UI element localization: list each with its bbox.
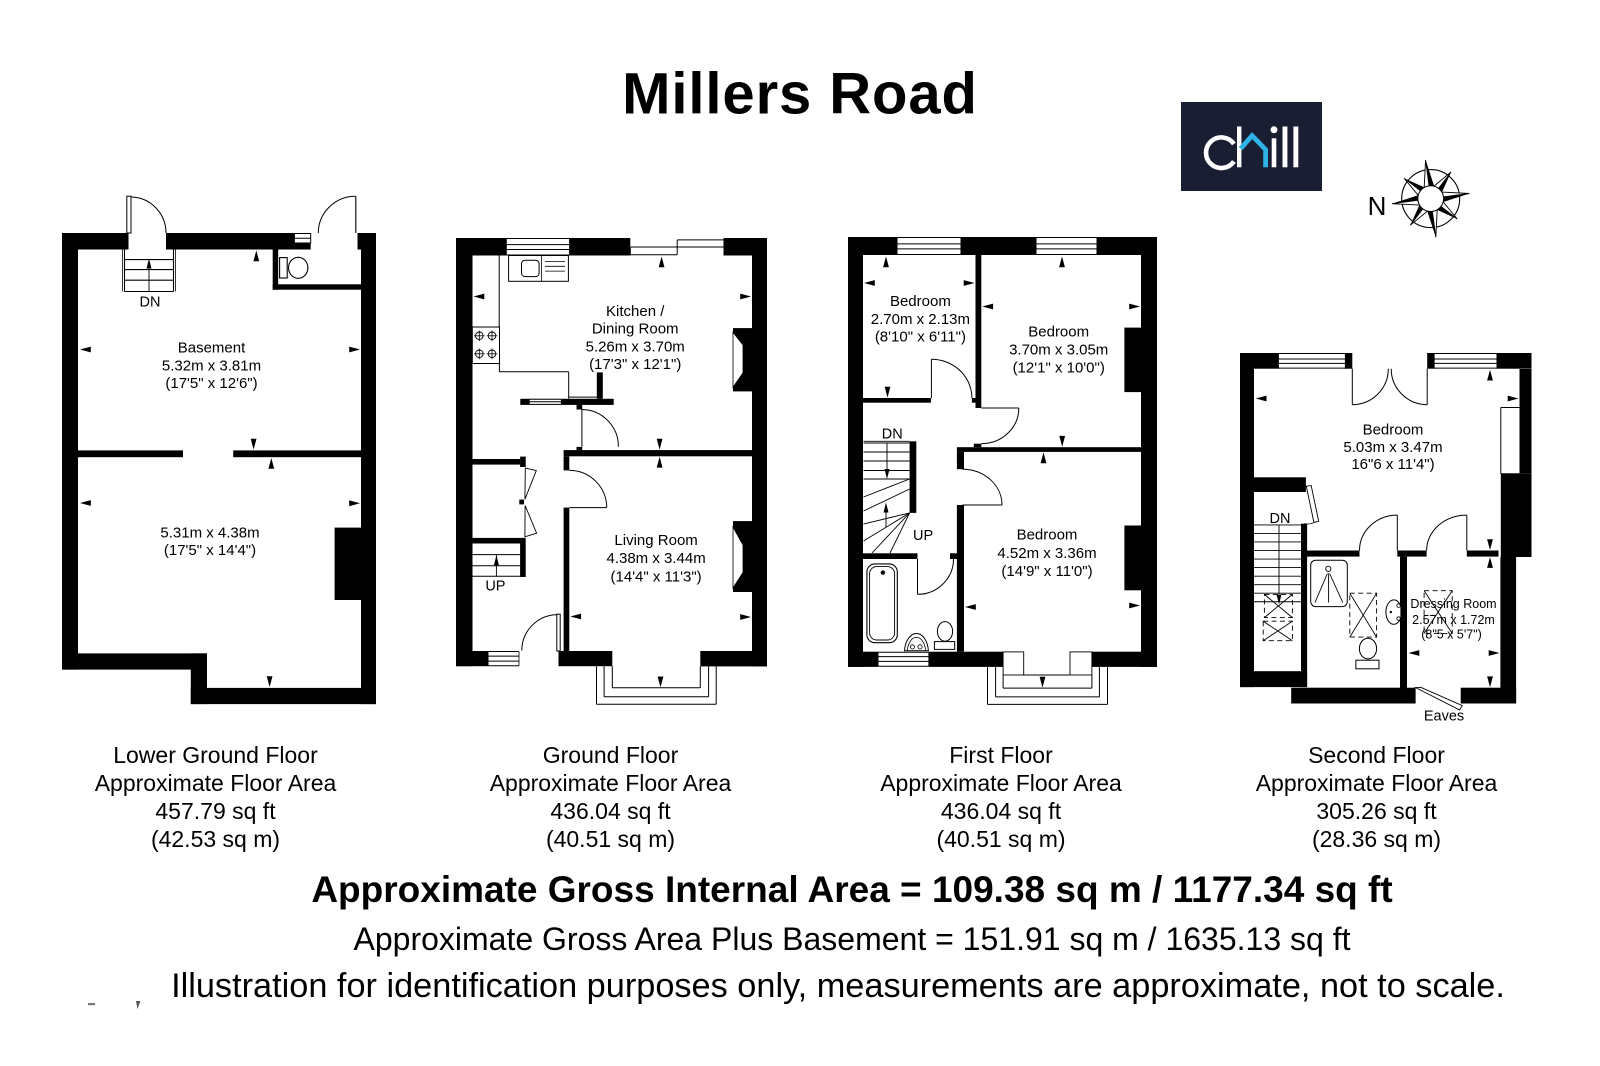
svg-text:(17'5" x 12'6"): (17'5" x 12'6") bbox=[165, 375, 257, 392]
svg-text:UP: UP bbox=[913, 528, 933, 544]
svg-text:Dressing Room: Dressing Room bbox=[1410, 597, 1496, 611]
svg-text:UP: UP bbox=[485, 579, 505, 595]
svg-text:3.70m x 3.05m: 3.70m x 3.05m bbox=[1009, 342, 1108, 359]
svg-text:(40.51 sq m): (40.51 sq m) bbox=[546, 826, 675, 852]
svg-text:First Floor: First Floor bbox=[949, 742, 1053, 768]
svg-text:DN: DN bbox=[882, 427, 903, 443]
svg-text:305.26 sq ft: 305.26 sq ft bbox=[1316, 798, 1437, 824]
svg-text:Approximate Floor Area: Approximate Floor Area bbox=[490, 770, 732, 796]
svg-text:5.26m x 3.70m: 5.26m x 3.70m bbox=[586, 338, 685, 355]
svg-text:(14'4" x 11'3"): (14'4" x 11'3") bbox=[611, 568, 702, 585]
svg-text:Approximate Floor Area: Approximate Floor Area bbox=[1256, 770, 1498, 796]
svg-text:2.70m x 2.13m: 2.70m x 2.13m bbox=[871, 311, 970, 328]
svg-text:Kitchen /: Kitchen / bbox=[606, 303, 665, 320]
svg-text:Dining Room: Dining Room bbox=[592, 321, 679, 338]
svg-text:2.57m x 1.72m: 2.57m x 1.72m bbox=[1412, 613, 1495, 627]
svg-text:N: N bbox=[1368, 191, 1387, 221]
svg-text:436.04 sq ft: 436.04 sq ft bbox=[941, 798, 1062, 824]
svg-text:436.04 sq ft: 436.04 sq ft bbox=[550, 798, 671, 824]
svg-text:(17'5" x 14'4"): (17'5" x 14'4") bbox=[164, 542, 256, 559]
svg-text:(40.51 sq m): (40.51 sq m) bbox=[936, 826, 1065, 852]
svg-text:Eaves: Eaves bbox=[1424, 709, 1464, 725]
svg-text:Bedroom: Bedroom bbox=[1017, 527, 1078, 544]
svg-text:5.32m x 3.81m: 5.32m x 3.81m bbox=[162, 358, 261, 375]
svg-text:Bedroom: Bedroom bbox=[1028, 324, 1089, 341]
svg-text:Approximate Gross Area Plus Ba: Approximate Gross Area Plus Basement = 1… bbox=[354, 921, 1351, 957]
svg-text:Millers Road: Millers Road bbox=[622, 62, 978, 127]
svg-text:(28.36 sq m): (28.36 sq m) bbox=[1312, 826, 1441, 852]
svg-text:16"6 x 11'4"): 16"6 x 11'4") bbox=[1351, 456, 1434, 473]
svg-text:(8'10" x 6'11"): (8'10" x 6'11") bbox=[875, 328, 966, 345]
svg-text:Second Floor: Second Floor bbox=[1308, 742, 1445, 768]
svg-text:Bedroom: Bedroom bbox=[1363, 421, 1424, 438]
svg-text:457.79 sq ft: 457.79 sq ft bbox=[155, 798, 276, 824]
svg-text:5.03m x 3.47m: 5.03m x 3.47m bbox=[1343, 439, 1442, 456]
svg-text:(8"5 x 5'7"): (8"5 x 5'7") bbox=[1421, 628, 1482, 642]
svg-text:Approximate Floor Area: Approximate Floor Area bbox=[880, 770, 1122, 796]
svg-text:(14'9" x 11'0"): (14'9" x 11'0") bbox=[1001, 563, 1092, 580]
svg-text:4.52m x 3.36m: 4.52m x 3.36m bbox=[997, 545, 1096, 562]
svg-text:Living Room: Living Room bbox=[614, 532, 697, 549]
svg-text:(42.53 sq m): (42.53 sq m) bbox=[151, 826, 280, 852]
svg-text:Approximate Floor Area: Approximate Floor Area bbox=[95, 770, 337, 796]
svg-text:5.31m x 4.38m: 5.31m x 4.38m bbox=[160, 524, 259, 541]
svg-text:Basement: Basement bbox=[178, 340, 246, 357]
svg-text:DN: DN bbox=[1270, 511, 1291, 527]
svg-text:Illustration for identificatio: Illustration for identification purposes… bbox=[171, 967, 1505, 1005]
svg-text:Lower Ground Floor: Lower Ground Floor bbox=[113, 742, 318, 768]
svg-text:Ground Floor: Ground Floor bbox=[543, 742, 679, 768]
svg-text:(12'1" x 10'0"): (12'1" x 10'0") bbox=[1013, 359, 1105, 376]
svg-text:(17'3" x 12'1"): (17'3" x 12'1") bbox=[589, 356, 681, 373]
svg-text:DN: DN bbox=[140, 295, 161, 311]
svg-text:Approximate Gross Internal Are: Approximate Gross Internal Area = 109.38… bbox=[311, 869, 1392, 910]
svg-text:4.38m x 3.44m: 4.38m x 3.44m bbox=[606, 550, 705, 567]
svg-text:Bedroom: Bedroom bbox=[890, 293, 951, 310]
